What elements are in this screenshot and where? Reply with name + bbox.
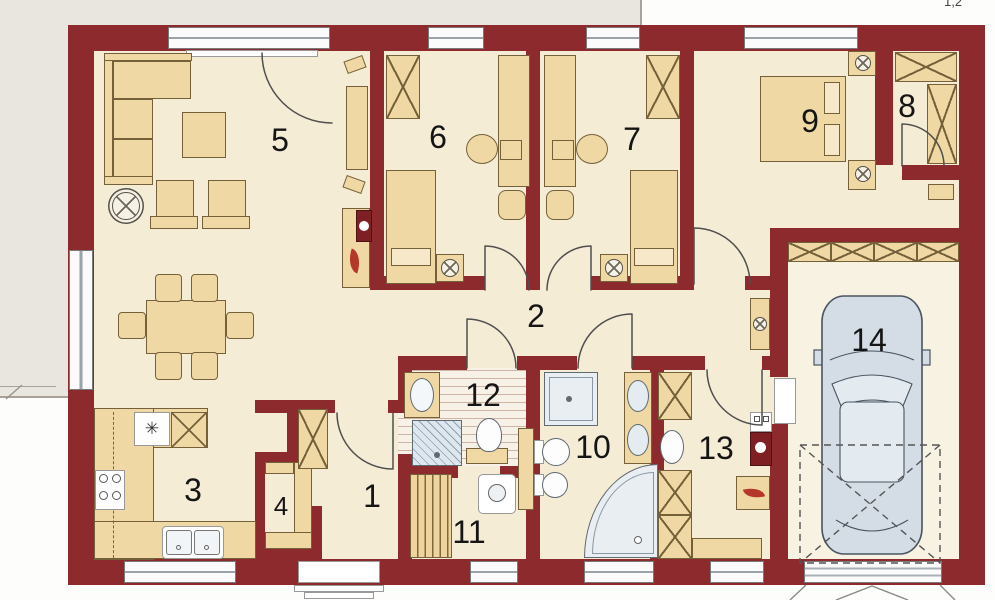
wall-segment [632, 356, 705, 370]
wall-segment [680, 51, 694, 290]
window [584, 561, 654, 583]
ceiling-lamp-icon [753, 317, 767, 331]
sofa-seat [113, 99, 153, 139]
side-counter [518, 428, 534, 510]
fridge-star-icon: ✳ [145, 419, 159, 439]
window [744, 27, 858, 49]
garage-floor [788, 240, 959, 559]
entrance-step [294, 585, 384, 592]
garage-shelf [917, 242, 959, 262]
stove-dot [359, 221, 369, 231]
driveway-marks [790, 585, 955, 600]
pillow [391, 248, 431, 266]
burner [112, 474, 121, 483]
stove-knob [754, 416, 760, 422]
room-label-10: 10 [575, 431, 611, 463]
room-label-14: 14 [851, 324, 887, 356]
room-label-13: 13 [698, 432, 734, 464]
fridge: ✳ [134, 412, 170, 446]
garage-shelf [831, 242, 874, 262]
corner-note: 1,2 [944, 0, 962, 9]
boiler-dot [755, 442, 766, 453]
room-label-7: 7 [623, 123, 641, 155]
room-label-9: 9 [801, 105, 819, 137]
office-chair [576, 134, 608, 164]
office-chair [466, 134, 498, 164]
shelf [928, 184, 954, 200]
bidet [542, 472, 568, 498]
wall-segment [875, 51, 893, 165]
pillow [824, 124, 840, 156]
dining-chair [155, 352, 182, 380]
wall-right [959, 25, 985, 585]
garage-interior-door-leaf [774, 378, 796, 424]
kitchen-cabinet [171, 412, 207, 448]
sofa-seat [113, 139, 153, 179]
sofa-seat [113, 61, 191, 99]
armchair-seat [156, 180, 194, 218]
ceiling-lamp-icon [441, 259, 459, 277]
pillow [634, 248, 674, 266]
shower-drain [566, 396, 572, 402]
sink-bowl [194, 530, 220, 555]
wardrobe [386, 55, 420, 119]
dining-table [146, 300, 226, 354]
entrance-door [298, 561, 380, 583]
burner [99, 491, 108, 500]
terrace-edge [0, 396, 70, 398]
counter [692, 538, 762, 559]
room-label-5: 5 [271, 124, 289, 156]
garage-door [804, 561, 942, 583]
armchair-seat [208, 180, 246, 218]
washbasin [410, 378, 434, 412]
dining-chair [191, 274, 218, 302]
ceiling-lamp-icon [855, 55, 871, 71]
terrace-area [0, 0, 70, 398]
window [69, 250, 93, 390]
room-label-8: 8 [898, 90, 916, 122]
dining-chair [191, 352, 218, 380]
room-label-4: 4 [274, 493, 288, 519]
shower-drain [434, 452, 440, 458]
room-label-12: 12 [465, 379, 501, 411]
sofa-back [104, 53, 192, 61]
sofa-back [104, 53, 113, 183]
monitor [552, 140, 574, 160]
cabinet [658, 470, 692, 515]
bed [630, 170, 678, 284]
chair [498, 190, 526, 220]
toilet [542, 438, 570, 466]
desk [544, 55, 576, 187]
bed [386, 170, 436, 284]
closet-4-opening [312, 466, 322, 506]
wardrobe [646, 55, 680, 119]
window [470, 561, 518, 583]
ceiling-lamp-icon [855, 166, 871, 182]
room-label-2: 2 [527, 300, 545, 332]
room-label-3: 3 [184, 474, 202, 506]
chair [546, 190, 574, 220]
garage-shelf [874, 242, 917, 262]
media-shelf [346, 86, 368, 170]
drain-dot [204, 545, 209, 550]
window [586, 27, 640, 49]
dining-chair [226, 312, 254, 339]
room-label-6: 6 [429, 121, 447, 153]
bathtub-drain [634, 536, 642, 544]
wall-segment [902, 165, 959, 180]
pillow [824, 82, 840, 114]
dining-chair [118, 312, 146, 339]
washer-drum [488, 484, 506, 502]
cabinet [658, 515, 692, 559]
vanity-sink [627, 380, 649, 412]
window [124, 561, 236, 583]
stove-top [750, 412, 772, 432]
desk [498, 55, 530, 187]
wardrobe [927, 84, 957, 164]
wall-segment [762, 356, 772, 370]
ceiling-lamp-icon [605, 259, 623, 277]
wardrobe [895, 52, 957, 82]
vanity-sink [627, 424, 649, 456]
monitor [500, 140, 522, 160]
closet-4-shelf [265, 462, 294, 474]
stove-knob [763, 416, 769, 422]
floor-plan: ✳ [0, 0, 995, 600]
window [710, 561, 764, 583]
sauna-bench [410, 474, 452, 558]
dining-chair [155, 274, 182, 302]
window-sill [186, 50, 318, 57]
terrace-area [0, 0, 642, 26]
window [168, 27, 330, 49]
wardrobe [298, 409, 328, 469]
burner [112, 491, 121, 500]
wall-segment [745, 276, 772, 290]
window [428, 27, 484, 49]
entrance-step [304, 592, 374, 599]
closet-4-shelf [265, 532, 312, 549]
armchair-base [150, 216, 198, 229]
terrace-edge [640, 0, 642, 26]
room-label-1: 1 [363, 480, 381, 512]
round-side-table [112, 192, 140, 220]
room-label-11: 11 [452, 516, 485, 548]
shower [412, 420, 462, 466]
garage-shelf [788, 242, 831, 262]
sink-bowl [166, 530, 192, 555]
toilet [476, 418, 502, 452]
burner [99, 474, 108, 483]
armchair-base [202, 216, 250, 229]
sofa-armrest [104, 176, 153, 185]
wall-segment [770, 228, 788, 377]
wall-segment [370, 51, 384, 290]
wall-segment [770, 424, 788, 559]
utility-sink [660, 430, 684, 464]
wall-segment [287, 413, 298, 455]
cabinet [658, 372, 692, 420]
coffee-table [182, 112, 226, 158]
terrace-edge [0, 386, 56, 387]
wall-segment [770, 228, 960, 242]
drain-dot [176, 545, 181, 550]
